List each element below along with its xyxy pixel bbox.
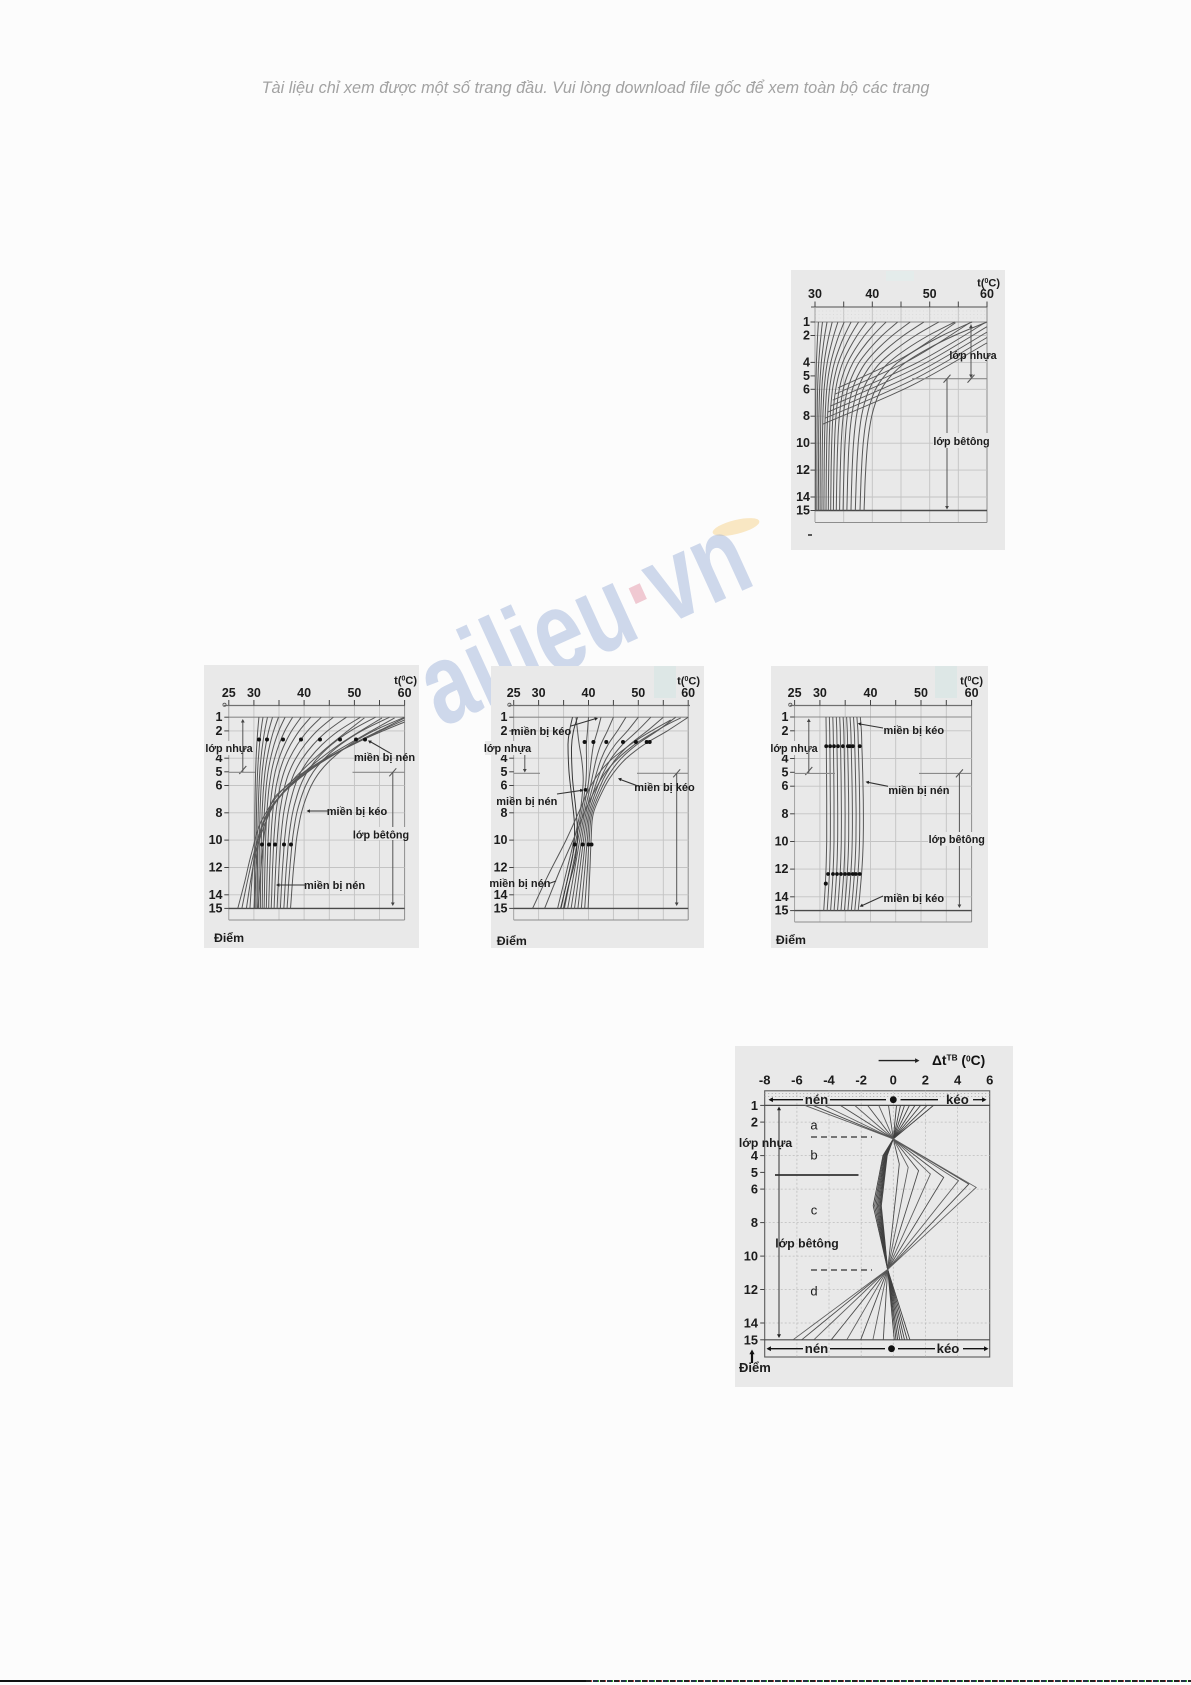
svg-text:60: 60: [681, 686, 695, 700]
svg-text:6: 6: [803, 382, 810, 396]
svg-text:1: 1: [216, 710, 223, 724]
svg-text:4: 4: [954, 1072, 962, 1087]
svg-text:15: 15: [209, 901, 223, 915]
svg-text:d: d: [810, 1284, 817, 1299]
svg-text:lớp bêtông: lớp bêtông: [933, 436, 989, 448]
svg-text:60: 60: [398, 686, 412, 700]
svg-text:8: 8: [782, 807, 789, 821]
svg-text:miền bị kéo: miền bị kéo: [511, 726, 572, 738]
svg-text:14: 14: [209, 888, 223, 902]
svg-text:25: 25: [788, 686, 802, 700]
svg-text:miền bị nén: miền bị nén: [888, 785, 949, 797]
svg-text:2: 2: [751, 1115, 758, 1130]
svg-text:15: 15: [744, 1332, 758, 1347]
svg-text:10: 10: [494, 833, 508, 847]
svg-text:6: 6: [986, 1072, 993, 1087]
svg-text:lớp nhựa: lớp nhựa: [949, 350, 997, 362]
svg-text:-4: -4: [823, 1072, 835, 1087]
svg-text:2: 2: [922, 1072, 929, 1087]
svg-text:12: 12: [494, 861, 508, 875]
svg-text:1: 1: [501, 710, 508, 724]
svg-text:14: 14: [796, 490, 810, 504]
svg-text:10: 10: [744, 1249, 758, 1264]
svg-text:miền bị nén: miền bị nén: [489, 878, 550, 890]
svg-text:5: 5: [216, 765, 223, 779]
svg-text:15: 15: [796, 504, 810, 518]
svg-text:8: 8: [751, 1215, 758, 1230]
svg-text:12: 12: [744, 1282, 758, 1297]
svg-text:t(0C): t(0C): [394, 675, 417, 687]
svg-text:50: 50: [631, 686, 645, 700]
svg-text:30: 30: [808, 287, 822, 301]
svg-text:2: 2: [501, 724, 508, 738]
svg-text:2: 2: [216, 724, 223, 738]
svg-text:lớp nhựa: lớp nhựa: [739, 1136, 793, 1150]
svg-text:25: 25: [507, 686, 521, 700]
svg-text:10: 10: [796, 436, 810, 450]
svg-text:miền bị nén: miền bị nén: [304, 880, 365, 892]
svg-text:lớp nhựa: lớp nhựa: [484, 743, 532, 755]
svg-text:40: 40: [864, 686, 878, 700]
svg-text:lớp nhựa: lớp nhựa: [205, 743, 253, 755]
svg-text:5: 5: [501, 765, 508, 779]
svg-text:kéo: kéo: [937, 1341, 960, 1356]
svg-text:ΔtTB (0C): ΔtTB (0C): [932, 1053, 985, 1069]
svg-text:t(0C): t(0C): [977, 278, 1000, 290]
svg-text:2: 2: [803, 329, 810, 343]
svg-text:30: 30: [532, 686, 546, 700]
svg-text:b: b: [810, 1148, 817, 1163]
svg-text:t(0C): t(0C): [960, 676, 983, 688]
svg-text:c: c: [811, 1203, 818, 1218]
svg-text:miền bị kéo: miền bị kéo: [884, 725, 945, 737]
svg-text:1: 1: [782, 710, 789, 724]
svg-text:50: 50: [914, 686, 928, 700]
svg-text:Điểm: Điểm: [497, 934, 527, 948]
svg-text:t(0C): t(0C): [677, 676, 700, 688]
svg-text:kéo: kéo: [946, 1092, 969, 1107]
svg-text:8: 8: [216, 806, 223, 820]
svg-text:0: 0: [890, 1072, 897, 1087]
svg-text:10: 10: [775, 835, 789, 849]
svg-text:25: 25: [222, 686, 236, 700]
svg-text:lớp nhựa: lớp nhựa: [770, 743, 818, 755]
svg-text:-2: -2: [855, 1072, 867, 1087]
svg-text:50: 50: [347, 686, 361, 700]
svg-text:miền bị kéo: miền bị kéo: [634, 782, 695, 794]
svg-text:15: 15: [494, 901, 508, 915]
svg-text:6: 6: [751, 1182, 758, 1197]
svg-text:5: 5: [751, 1165, 758, 1180]
svg-text:1: 1: [803, 315, 810, 329]
svg-text:15: 15: [775, 904, 789, 918]
svg-text:30: 30: [247, 686, 261, 700]
svg-text:30: 30: [813, 686, 827, 700]
svg-text:nén: nén: [805, 1341, 828, 1356]
svg-text:12: 12: [209, 861, 223, 875]
svg-text:1: 1: [751, 1098, 758, 1113]
svg-text:6: 6: [782, 779, 789, 793]
svg-text:miền bị nén: miền bị nén: [354, 752, 415, 764]
svg-text:40: 40: [865, 287, 879, 301]
svg-text:Điểm: Điểm: [776, 933, 806, 947]
svg-text:lớp bêtông: lớp bêtông: [353, 830, 409, 842]
svg-text:lớp bêtông: lớp bêtông: [775, 1237, 839, 1251]
svg-text:40: 40: [297, 686, 311, 700]
svg-text:miền bị kéo: miền bị kéo: [327, 806, 388, 818]
svg-text:Điểm: Điểm: [214, 931, 244, 945]
svg-text:miền bị nén: miền bị nén: [496, 796, 557, 808]
svg-text:6: 6: [501, 779, 508, 793]
svg-text:a: a: [810, 1118, 818, 1133]
svg-text:5: 5: [782, 765, 789, 779]
svg-text:14: 14: [744, 1316, 759, 1331]
svg-text:2: 2: [782, 724, 789, 738]
svg-text:6: 6: [216, 779, 223, 793]
svg-text:miền bị kéo: miền bị kéo: [884, 893, 945, 905]
svg-text:4: 4: [751, 1148, 759, 1163]
svg-text:-6: -6: [791, 1072, 803, 1087]
svg-text:Điểm: Điểm: [739, 1360, 771, 1375]
svg-text:8: 8: [803, 409, 810, 423]
svg-text:40: 40: [582, 686, 596, 700]
svg-text:60: 60: [965, 686, 979, 700]
svg-text:nén: nén: [805, 1092, 828, 1107]
svg-text:4: 4: [803, 355, 810, 369]
svg-text:14: 14: [775, 890, 789, 904]
svg-text:10: 10: [209, 833, 223, 847]
svg-text:12: 12: [775, 862, 789, 876]
svg-text:12: 12: [796, 463, 810, 477]
svg-text:lớp bêtông: lớp bêtông: [929, 834, 985, 846]
svg-text:5: 5: [803, 369, 810, 383]
svg-text:-8: -8: [759, 1072, 771, 1087]
svg-text:50: 50: [923, 287, 937, 301]
